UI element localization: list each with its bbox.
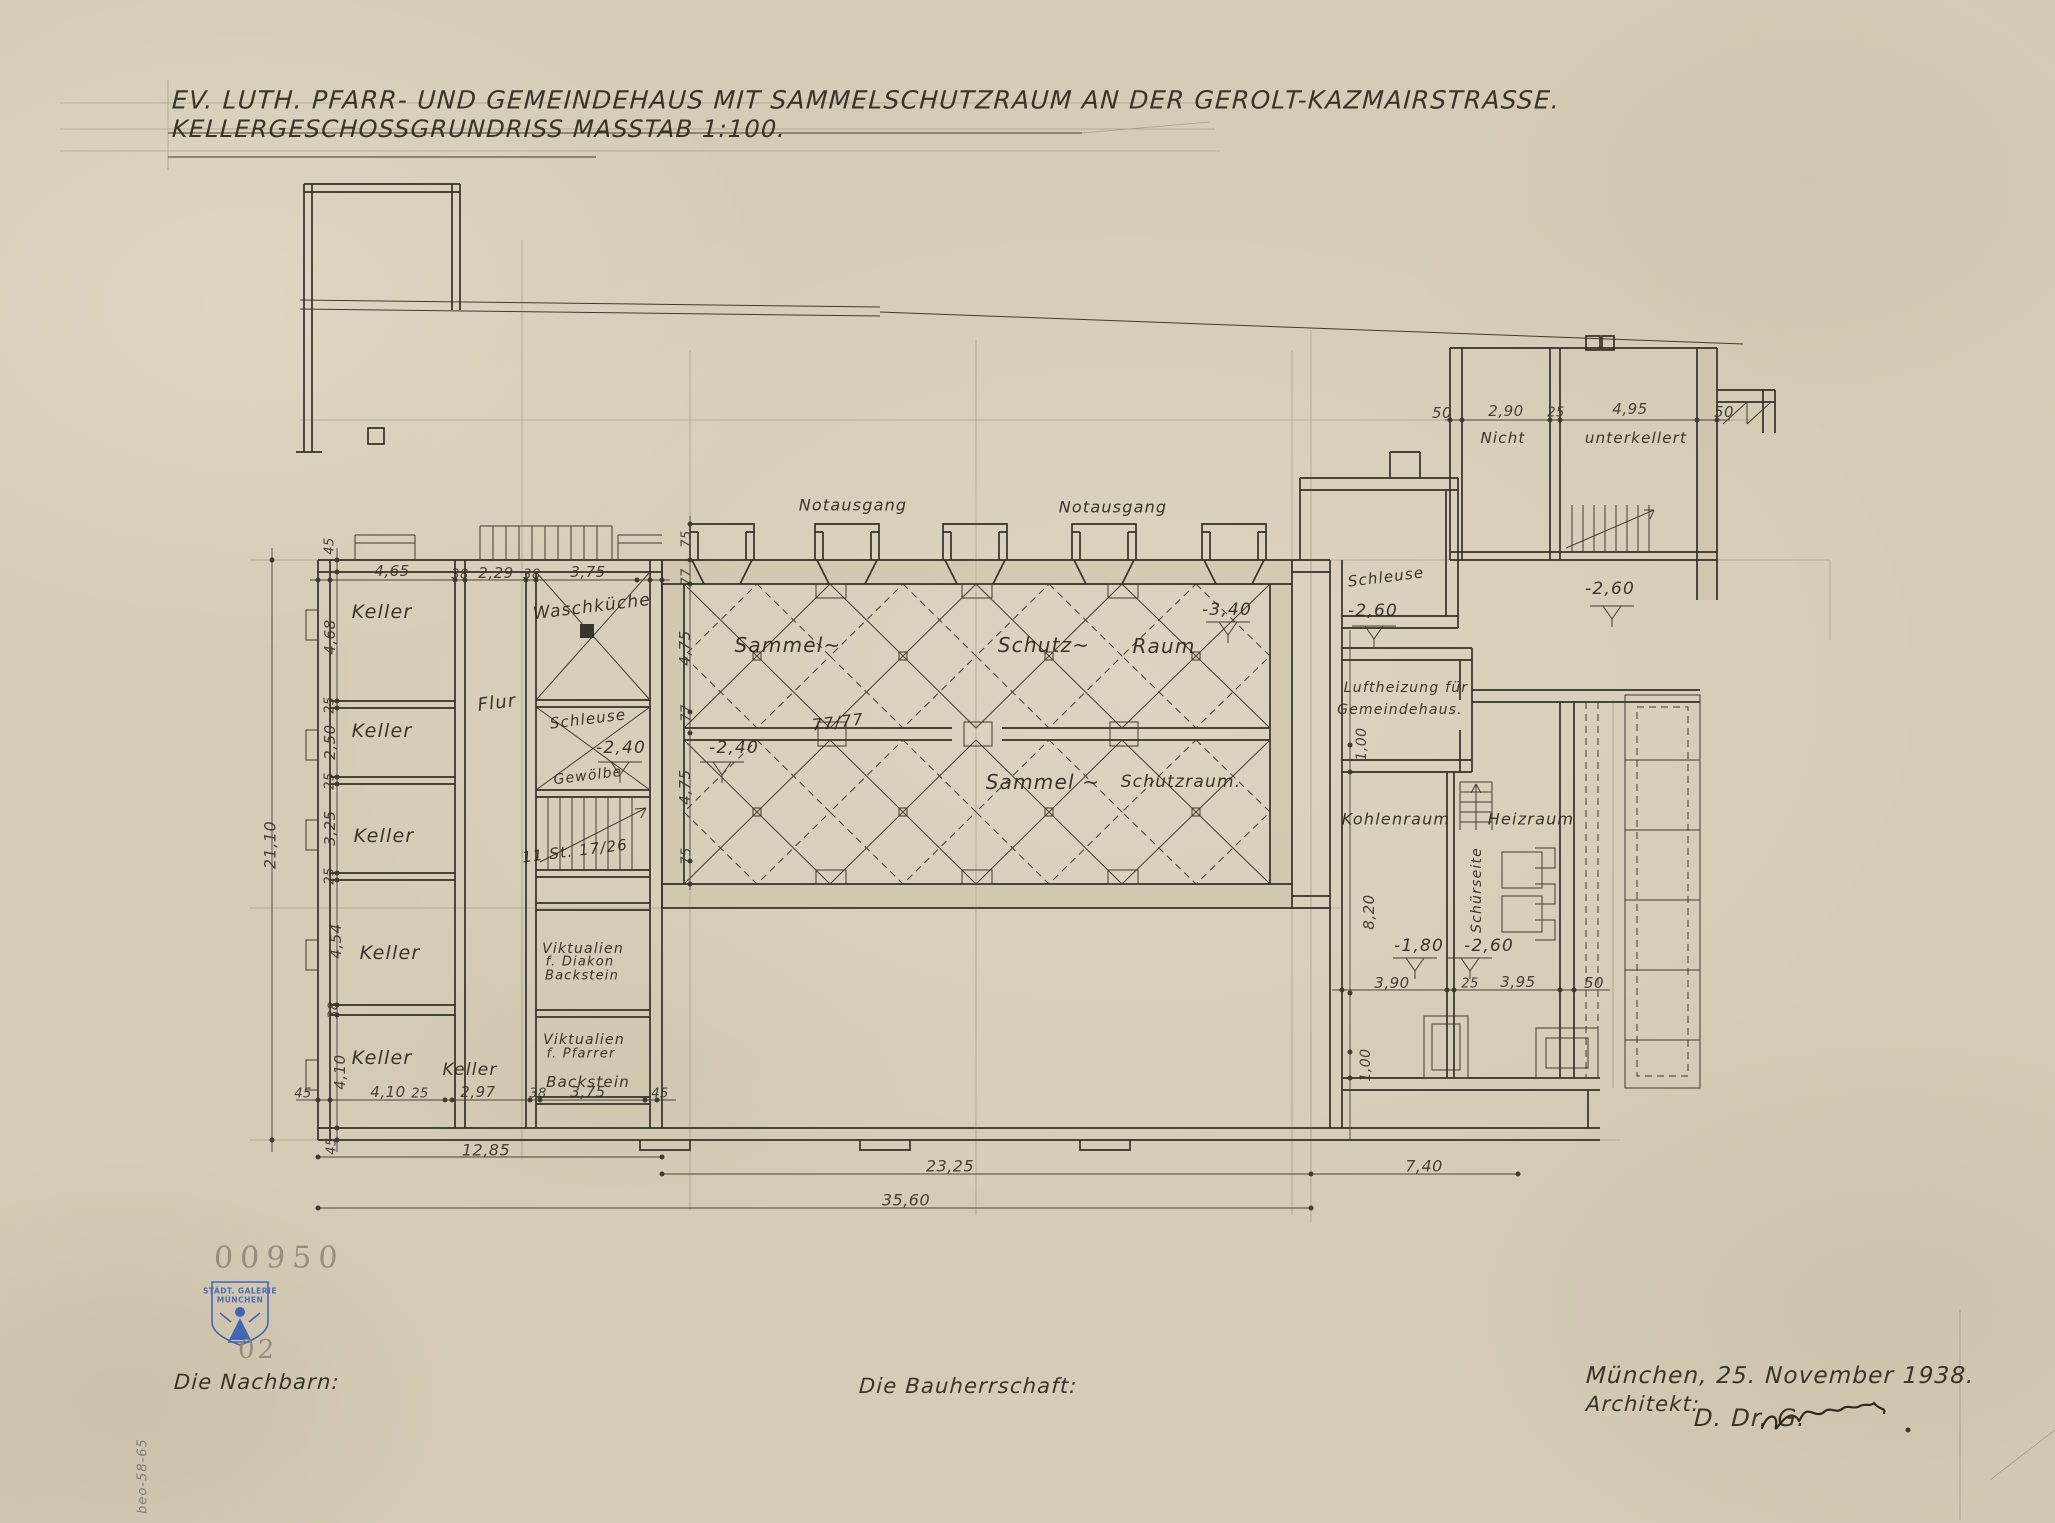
dim-12-85: 12,85 [462,1141,510,1160]
notausgang-label-2: Notausgang [1059,498,1168,517]
room-label-heizraum: Heizraum [1488,810,1574,829]
room-label-keller-6: Keller [442,1060,497,1080]
footer-architekt: Architekt: [1585,1392,1701,1416]
vault-diagonals [684,584,1270,884]
left-wing-walls [306,526,1600,1150]
room-label-viktualien-diakon-2: f. Diakon [546,955,615,970]
dim-25-f: 25 [1461,977,1479,992]
stove-symbol [580,624,594,638]
dim-4-68: 4,68 [321,619,339,654]
room-label-kohlenraum: Kohlenraum [1342,810,1450,829]
boiler-symbols [1502,848,1555,940]
dim-2-97: 2,97 [460,1083,495,1101]
schuerseite-label: Schürseite [1469,847,1485,933]
dim-50-c: 50 [1584,974,1604,992]
dim-25-e: 25 [1547,406,1565,421]
level-kohlenraum: -1,80 [1394,936,1444,956]
footer-date: München, 25. November 1938. [1585,1363,1975,1389]
construction-lines [60,80,2055,1520]
room-label-keller-1: Keller [352,601,413,623]
dim-77-a: 77 [680,568,695,586]
dim-4-75-b: 4,75 [676,769,694,804]
dim-1-00-b: 1,00 [1358,1048,1374,1081]
dim-77-b: 77 [680,704,695,722]
level-heizraum: -2,60 [1464,936,1514,956]
blueprint-scan: { "title": { "line1": "EV. LUTH. PFARR- … [0,0,2055,1523]
dim-2-50: 2,50 [321,724,339,759]
exterior-stairs [1566,505,1654,552]
dim-23-25: 23,25 [926,1157,974,1176]
level-schleuse-left: -2,40 [596,738,646,758]
archive-number-stamp: 00950 [213,1241,345,1276]
dim-4-54: 4,54 [327,923,345,958]
dim-4-75-a: 4,75 [676,630,694,665]
level-far-right: -2,60 [1585,579,1635,599]
stamp-sub-number: 02 [237,1335,278,1365]
dim-3-90: 3,90 [1374,974,1409,992]
vault-diamonds [684,584,1270,884]
room-label-schutzraum-bottom: Schutzraum. [1121,772,1242,792]
dim-25-d: 25 [411,1087,429,1102]
galerie-stamp-line1: STÄDT. GALERIE [203,1287,277,1296]
footer-bauherrschaft: Die Bauherrschaft: [858,1374,1078,1398]
plan-linework [0,0,2055,1523]
dim-3-25: 3,25 [321,810,339,845]
dim-3-75-top: 3,75 [570,563,605,581]
dim-50-a: 50 [1432,404,1452,422]
dim-38-d: 38 [529,1087,547,1102]
room-label-keller-4: Keller [360,942,421,964]
drawing-title-line1: EV. LUTH. PFARR- UND GEMEINDEHAUS MIT SA… [171,86,1561,115]
room-label-luftheizung-1: Luftheizung für [1344,680,1468,696]
level-schleuse-right: -2,60 [1348,601,1398,621]
room-label-keller-3: Keller [354,825,415,847]
room-label-keller-2: Keller [352,720,413,742]
nicht-unterkellert-zone [1450,336,1830,640]
dim-35-60: 35,60 [882,1191,930,1210]
dim-4-10-v: 4,10 [331,1054,349,1089]
dim-38-a: 38 [451,568,469,583]
notausgang-label-1: Notausgang [799,496,908,515]
footer-signature-prefix: D. Dr. G. [1693,1404,1807,1432]
dim-1-00-a: 1,00 [1354,727,1370,760]
room-label-keller-5: Keller [352,1047,413,1069]
dim-50-b: 50 [1714,403,1734,421]
dim-45-br: 45 [651,1087,669,1102]
margin-inventory-number: beo-58-65 [136,1438,151,1514]
drawing-title-line2: KELLERGESCHOSSGRUNDRISS MASSTAB 1:100. [171,115,787,143]
dim-7-40: 7,40 [1405,1157,1443,1176]
dim-38-b: 38 [523,568,541,583]
dim-38-c: 38 [327,1001,342,1019]
dim-2-29: 2,29 [478,564,513,582]
dim-21-10: 21,10 [261,821,280,869]
level-hall-left: -2,40 [709,738,759,758]
dim-45-bottom: 45 [325,1137,340,1155]
dim-75-a: 75 [680,530,695,548]
level-hall-right: -3,40 [1202,600,1252,620]
dim-75-b: 75 [680,847,695,865]
dim-2-90: 2,90 [1488,402,1523,420]
dim-4-10-h: 4,10 [370,1083,405,1101]
right-wing-walls [1292,452,1700,1128]
galerie-stamp-line2: MÜNCHEN [217,1296,264,1305]
dim-4-95: 4,95 [1612,400,1647,418]
dim-25-a: 25 [323,696,338,714]
unterkellert-label: unterkellert [1585,429,1687,447]
dim-45-bl: 45 [294,1087,312,1102]
room-label-luftheizung-2: Gemeindehaus. [1337,702,1463,718]
dim-25-c: 25 [323,867,338,885]
room-label-viktualien-diakon-3: Backstein [545,969,619,984]
nicht-label: Nicht [1480,429,1525,447]
site-lines [296,184,1743,452]
dim-3-95: 3,95 [1500,973,1535,991]
dim-25-b: 25 [323,772,338,790]
dim-3-75-bottom: 3,75 [570,1083,605,1101]
room-label-sammel-top: Sammel~ [735,633,842,657]
room-label-schutz-top: Schutz~ [998,633,1091,657]
light-shaft [1613,695,1700,1088]
room-label-viktualien-pfarrer-2: f. Pfarrer [546,1047,615,1062]
room-label-sammel-bottom: Sammel ~ [986,770,1101,794]
room-label-raum-top: Raum [1132,634,1195,658]
footer-nachbarn: Die Nachbarn: [173,1370,340,1394]
dim-4-65: 4,65 [374,562,409,580]
dim-45-top: 45 [323,537,338,555]
dim-8-20: 8,20 [1360,894,1378,929]
